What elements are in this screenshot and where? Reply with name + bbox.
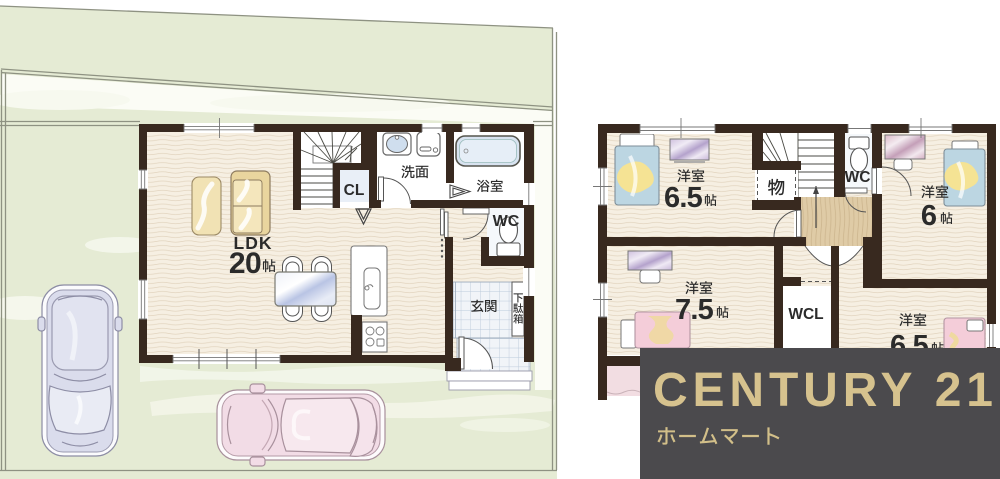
svg-text:WC: WC	[845, 169, 871, 186]
svg-text:WCL: WCL	[788, 306, 823, 323]
svg-text:WC: WC	[493, 213, 520, 230]
svg-text:7.5: 7.5	[675, 294, 714, 326]
svg-text:6.5: 6.5	[664, 182, 703, 214]
svg-text:CENTURY 21: CENTURY 21	[653, 364, 996, 417]
svg-text:20: 20	[229, 247, 261, 280]
svg-text:CL: CL	[344, 182, 365, 199]
svg-text:6: 6	[921, 200, 937, 232]
